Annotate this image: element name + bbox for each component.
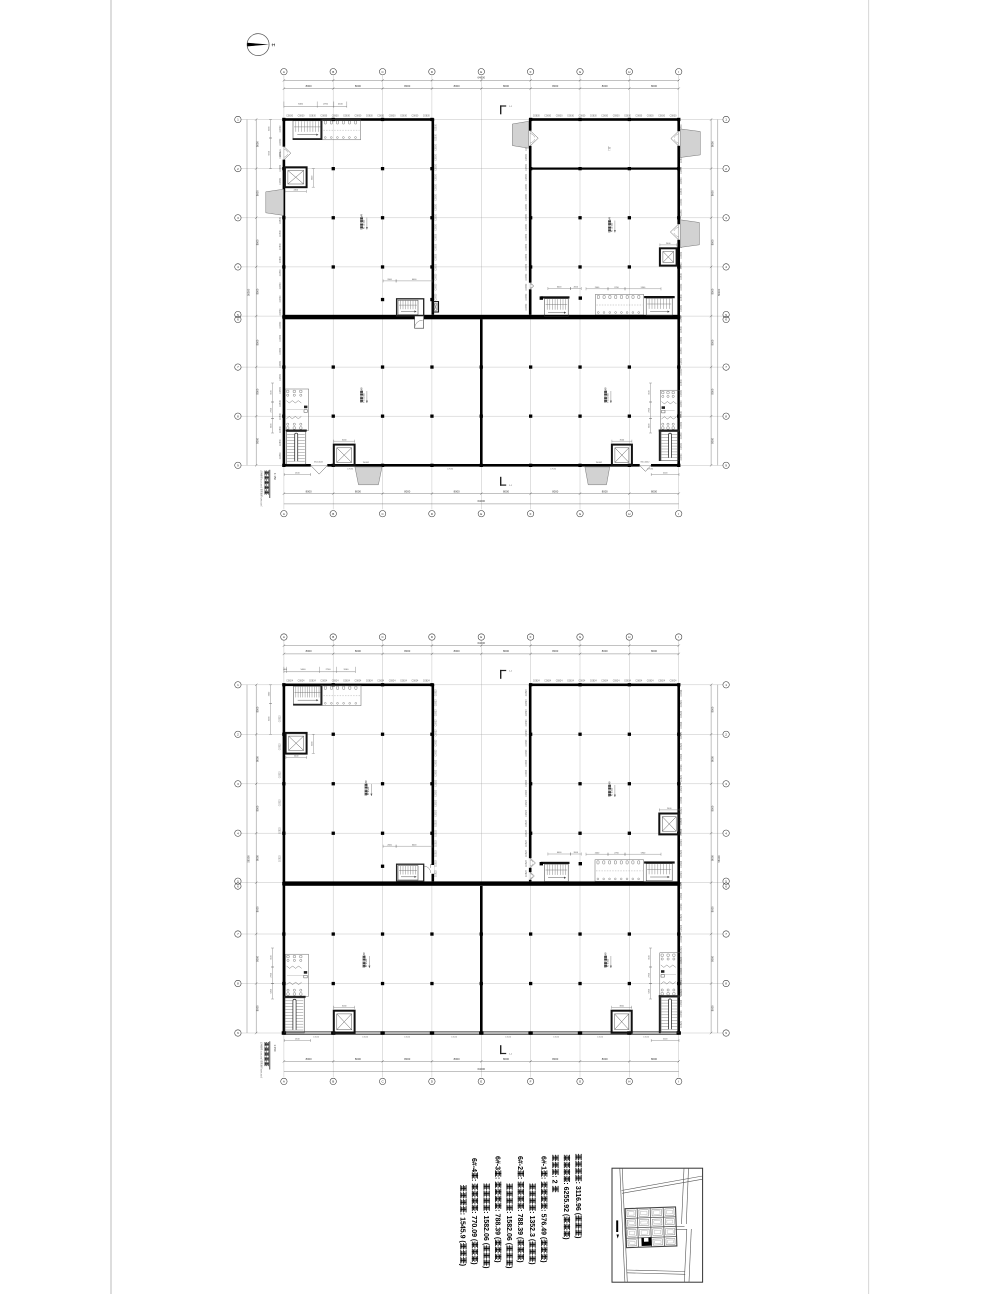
svg-text:C0823: C0823	[280, 715, 282, 722]
svg-text:C0830: C0830	[635, 115, 642, 117]
svg-text:C0824: C0824	[681, 892, 683, 899]
svg-text:C0830: C0830	[435, 173, 437, 180]
svg-text:C0824: C0824	[320, 681, 327, 683]
svg-text:8000: 8000	[256, 239, 260, 245]
svg-text:C0830: C0830	[533, 115, 540, 117]
svg-text:F2 6.000: F2 6.000	[608, 958, 610, 967]
svg-text:C0830: C0830	[670, 115, 677, 117]
svg-text:: 576.49 (: : 576.49 (	[540, 1209, 547, 1240]
svg-text:8000: 8000	[552, 489, 558, 493]
svg-text:C0830: C0830	[280, 308, 282, 315]
svg-text:C0830: C0830	[526, 283, 528, 290]
svg-text:C0830: C0830	[280, 360, 282, 367]
svg-text:C0823: C0823	[526, 689, 528, 696]
svg-text:): )	[574, 1236, 581, 1238]
svg-text:C0823: C0823	[526, 839, 528, 846]
svg-text:C0830: C0830	[681, 272, 683, 279]
svg-text:1:150: 1:150	[273, 473, 277, 480]
svg-text::: :	[493, 1177, 500, 1179]
svg-text:C0824: C0824	[681, 924, 683, 931]
svg-text:C0824: C0824	[681, 839, 683, 846]
svg-text:C0830: C0830	[435, 243, 437, 250]
svg-text:8000: 8000	[454, 649, 460, 653]
svg-text:C0830: C0830	[601, 115, 608, 117]
svg-text:C0824: C0824	[681, 796, 683, 803]
svg-text:C0830: C0830	[681, 187, 683, 194]
svg-text:C0824: C0824	[681, 849, 683, 856]
svg-text:): )	[516, 1260, 523, 1262]
svg-text:C0830: C0830	[526, 293, 528, 300]
svg-text:C0824: C0824	[556, 681, 563, 683]
svg-text:C0823: C0823	[435, 799, 437, 806]
svg-text:C0830: C0830	[280, 256, 282, 263]
svg-text:C0824: C0824	[544, 681, 551, 683]
svg-text:1:150: 1:150	[273, 1045, 277, 1052]
svg-text:A: A	[283, 512, 285, 516]
svg-text:6#-2: 6#-2	[516, 1156, 523, 1170]
svg-text:C0823: C0823	[435, 709, 437, 716]
svg-text:C0830: C0830	[526, 303, 528, 310]
svg-text:C0823: C0823	[526, 779, 528, 786]
svg-text::: :	[470, 1179, 477, 1181]
svg-text:C0824: C0824	[681, 742, 683, 749]
svg-text:C0823: C0823	[435, 699, 437, 706]
svg-text:C0824: C0824	[423, 681, 430, 683]
svg-text:8000: 8000	[503, 649, 509, 653]
svg-text:C0824: C0824	[343, 681, 350, 683]
svg-text:8000: 8000	[552, 649, 558, 653]
svg-text:C0824: C0824	[366, 681, 373, 683]
svg-text:8000: 8000	[503, 1057, 509, 1061]
svg-text:C0823: C0823	[435, 829, 437, 836]
svg-text:6#: 6#	[604, 953, 608, 956]
svg-text:C0824: C0824	[681, 881, 683, 888]
svg-text:: 788.39 (: : 788.39 (	[516, 1209, 523, 1240]
svg-text:8000: 8000	[711, 805, 715, 811]
svg-text:C7530: C7530	[447, 469, 454, 471]
svg-text:C0830: C0830	[280, 243, 282, 250]
svg-text:8000: 8000	[256, 805, 260, 811]
svg-text:64000: 64000	[478, 641, 486, 645]
svg-text:C0824: C0824	[681, 710, 683, 717]
svg-text:C0824: C0824	[389, 681, 396, 683]
svg-text:C0823: C0823	[526, 729, 528, 736]
svg-text:C0830: C0830	[280, 321, 282, 328]
svg-text:F1 ±0.000: F1 ±0.000	[364, 219, 366, 229]
svg-text:W0642: W0642	[596, 462, 603, 464]
svg-text:C0830: C0830	[681, 304, 683, 311]
svg-text:C0830: C0830	[309, 115, 316, 117]
svg-text:F1 ±0.000: F1 ±0.000	[364, 392, 366, 402]
svg-text:): )	[459, 1264, 466, 1266]
svg-text:C0824: C0824	[647, 681, 654, 683]
svg-text:MLC4042: MLC4042	[641, 462, 651, 464]
svg-text:8000: 8000	[404, 649, 410, 653]
svg-text:F: F	[530, 1080, 532, 1084]
svg-text:C0830: C0830	[435, 133, 437, 140]
svg-text:C0824: C0824	[613, 681, 620, 683]
svg-text:8000: 8000	[711, 756, 715, 762]
svg-text:C0824: C0824	[355, 681, 362, 683]
svg-text:C0823: C0823	[526, 870, 528, 877]
svg-text:C7530: C7530	[550, 469, 557, 471]
svg-text:C0830: C0830	[435, 233, 437, 240]
svg-text:C0823: C0823	[526, 789, 528, 796]
svg-text:56300: 56300	[717, 288, 721, 296]
svg-text:8000: 8000	[552, 84, 558, 88]
svg-text:8000: 8000	[711, 141, 715, 147]
svg-text:C0824: C0824	[681, 721, 683, 728]
svg-text:): )	[482, 1266, 489, 1268]
svg-text:C0824: C0824	[681, 946, 683, 953]
svg-text:C0824: C0824	[533, 681, 540, 683]
svg-text:C0824: C0824	[567, 681, 574, 683]
svg-text:C0830: C0830	[280, 216, 282, 223]
svg-text:C0830: C0830	[567, 115, 574, 117]
svg-text:8000: 8000	[306, 489, 312, 493]
svg-text:C0830: C0830	[579, 115, 586, 117]
svg-text:): )	[493, 1260, 500, 1262]
svg-text:C1524: C1524	[362, 1036, 369, 1038]
svg-text:C0830: C0830	[681, 336, 683, 343]
svg-text:E: E	[480, 512, 482, 516]
svg-text:8000: 8000	[711, 955, 715, 961]
svg-text:C0830: C0830	[681, 442, 683, 449]
svg-text:C0830: C0830	[658, 115, 665, 117]
svg-text:C0830: C0830	[280, 125, 282, 132]
svg-text:C0830: C0830	[681, 410, 683, 417]
svg-text:C0830: C0830	[681, 453, 683, 460]
svg-text:C0830: C0830	[280, 229, 282, 236]
svg-text:C0830: C0830	[681, 294, 683, 301]
svg-text:8000: 8000	[711, 1005, 715, 1011]
svg-text:C0823: C0823	[526, 749, 528, 756]
svg-text:H: H	[628, 512, 630, 516]
svg-text:C0830: C0830	[400, 115, 407, 117]
svg-text:C0830: C0830	[681, 283, 683, 290]
svg-text:8000: 8000	[404, 489, 410, 493]
svg-text:C0823: C0823	[435, 769, 437, 776]
svg-text:8000: 8000	[711, 288, 715, 294]
svg-text:C0830: C0830	[526, 203, 528, 210]
svg-text:C0830: C0830	[681, 368, 683, 375]
svg-text:C0830: C0830	[366, 115, 373, 117]
svg-text:C0830: C0830	[355, 115, 362, 117]
svg-text:C0830: C0830	[681, 166, 683, 173]
svg-text:C0823: C0823	[280, 799, 282, 806]
svg-text:8000: 8000	[355, 1057, 361, 1061]
svg-text:C0830: C0830	[526, 243, 528, 250]
svg-text:C0830: C0830	[526, 223, 528, 230]
svg-text:8000: 8000	[454, 84, 460, 88]
svg-text:8000: 8000	[711, 706, 715, 712]
svg-text:64000: 64000	[478, 76, 486, 80]
svg-text:56300: 56300	[246, 288, 250, 296]
svg-text:8000: 8000	[404, 1057, 410, 1061]
svg-text:C0824: C0824	[658, 681, 665, 683]
svg-text:C0824: C0824	[681, 999, 683, 1006]
svg-text:C0830: C0830	[526, 273, 528, 280]
svg-text:8000: 8000	[503, 84, 509, 88]
svg-text:8000: 8000	[602, 1057, 608, 1061]
svg-text:C0830: C0830	[681, 389, 683, 396]
svg-text:: 3116.96 (: : 3116.96 (	[574, 1182, 581, 1216]
svg-text:8000: 8000	[503, 489, 509, 493]
svg-text:C1524: C1524	[553, 1036, 560, 1038]
svg-text:C0830: C0830	[280, 439, 282, 446]
svg-text:C0824: C0824	[400, 681, 407, 683]
svg-text:C0824: C0824	[681, 967, 683, 974]
svg-text:MLC4042: MLC4042	[314, 462, 324, 464]
svg-text:C0824: C0824	[681, 817, 683, 824]
svg-text:H: H	[628, 1080, 630, 1084]
svg-text:6#: 6#	[360, 388, 364, 391]
svg-text:6#: 6#	[608, 782, 612, 785]
svg-text:C0830: C0830	[435, 183, 437, 190]
svg-text:C1524: C1524	[597, 1036, 604, 1038]
svg-text:C0823: C0823	[526, 819, 528, 826]
svg-text:F1 ±0.000: F1 ±0.000	[612, 222, 614, 232]
svg-text:MC0842: MC0842	[280, 148, 282, 156]
svg-text:C0823: C0823	[435, 749, 437, 756]
svg-text:C0823: C0823	[280, 743, 282, 750]
svg-text:8000: 8000	[355, 84, 361, 88]
svg-text:8000: 8000	[454, 1057, 460, 1061]
svg-text:C0830: C0830	[435, 283, 437, 290]
svg-text:8000: 8000	[454, 489, 460, 493]
svg-text:64000: 64000	[478, 1067, 486, 1071]
svg-text:8000: 8000	[651, 84, 657, 88]
svg-text:8000: 8000	[651, 489, 657, 493]
svg-text:C0830: C0830	[280, 412, 282, 419]
svg-text:): )	[470, 1262, 477, 1264]
svg-text:C0823: C0823	[526, 809, 528, 816]
svg-text:C0823: C0823	[435, 739, 437, 746]
svg-text:B: B	[332, 635, 334, 639]
svg-text:8000: 8000	[711, 388, 715, 394]
svg-text:C0824: C0824	[681, 903, 683, 910]
svg-text::: :	[516, 1177, 523, 1179]
svg-text:): )	[505, 1266, 512, 1268]
svg-text:C0830: C0830	[280, 282, 282, 289]
svg-text:B: B	[332, 512, 334, 516]
svg-text:C0824: C0824	[681, 978, 683, 985]
svg-text:C0830: C0830	[280, 177, 282, 184]
svg-text:8000: 8000	[256, 437, 260, 443]
svg-text:C0830: C0830	[526, 253, 528, 260]
svg-text:A: A	[283, 70, 285, 74]
svg-text:8000: 8000	[711, 239, 715, 245]
svg-text:C0824: C0824	[670, 681, 677, 683]
svg-text:C7530: C7530	[647, 469, 654, 471]
svg-text:C0830: C0830	[590, 115, 597, 117]
svg-text:8000: 8000	[256, 756, 260, 762]
svg-text:E: E	[480, 635, 482, 639]
svg-text:: 1545.9 (: : 1545.9 (	[459, 1213, 466, 1244]
svg-text:C0824: C0824	[332, 681, 339, 683]
svg-text:8000: 8000	[602, 649, 608, 653]
svg-text:C0823: C0823	[435, 759, 437, 766]
svg-text:2700: 2700	[323, 104, 329, 106]
svg-text:C0823: C0823	[526, 709, 528, 716]
svg-text:C0824: C0824	[579, 681, 586, 683]
svg-text:C0830: C0830	[526, 173, 528, 180]
svg-text:6#-3: 6#-3	[493, 1156, 500, 1170]
svg-text:8000: 8000	[306, 84, 312, 88]
svg-text:C0830: C0830	[681, 198, 683, 205]
svg-text:6#-4: 6#-4	[470, 1158, 477, 1172]
svg-text:8000: 8000	[651, 649, 657, 653]
svg-text:C0824: C0824	[286, 681, 293, 683]
svg-text:C0824: C0824	[412, 681, 419, 683]
svg-text:8000: 8000	[306, 649, 312, 653]
svg-text:8000: 8000	[602, 84, 608, 88]
svg-text:C0824: C0824	[681, 764, 683, 771]
svg-text:C0830: C0830	[647, 115, 654, 117]
svg-text:56300: 56300	[717, 855, 721, 863]
svg-text:F2 6.000: F2 6.000	[368, 786, 370, 795]
svg-text:C0824: C0824	[681, 828, 683, 835]
svg-text:C0830: C0830	[681, 347, 683, 354]
svg-text:6#: 6#	[604, 388, 608, 391]
svg-text:C0823: C0823	[435, 819, 437, 826]
svg-text:C0830: C0830	[280, 138, 282, 145]
svg-text:F: F	[530, 635, 532, 639]
svg-text:F2 6.000: F2 6.000	[366, 958, 368, 967]
svg-text:C1524: C1524	[451, 1036, 458, 1038]
svg-text:2700: 2700	[326, 669, 332, 671]
svg-text:): )	[562, 1237, 569, 1239]
svg-text:: 788.39 (: : 788.39 (	[493, 1209, 500, 1240]
svg-text:C0830: C0830	[332, 115, 339, 117]
svg-text:C0824: C0824	[681, 700, 683, 707]
svg-text:C0823: C0823	[435, 779, 437, 786]
svg-text:8000: 8000	[256, 190, 260, 196]
svg-text:6#: 6#	[362, 953, 366, 956]
svg-text:8000: 8000	[256, 955, 260, 961]
svg-text:8000: 8000	[711, 906, 715, 912]
svg-text:C0830: C0830	[280, 386, 282, 393]
svg-text:8000: 8000	[711, 437, 715, 443]
svg-text:C0824: C0824	[681, 914, 683, 921]
svg-text:5400: 5400	[301, 669, 307, 671]
svg-text:C0830: C0830	[435, 213, 437, 220]
svg-text:C0830: C0830	[681, 251, 683, 258]
svg-text:C0824: C0824	[681, 935, 683, 942]
svg-text:C0823: C0823	[435, 729, 437, 736]
svg-text:8000: 8000	[711, 190, 715, 196]
svg-text:C0830: C0830	[681, 325, 683, 332]
svg-text:C0823: C0823	[526, 849, 528, 856]
svg-text:C0824: C0824	[309, 681, 316, 683]
svg-text:C0830: C0830	[320, 115, 327, 117]
svg-text:8000: 8000	[602, 489, 608, 493]
svg-text:C0823: C0823	[280, 771, 282, 778]
svg-text:6#: 6#	[364, 781, 368, 784]
svg-text:C0830: C0830	[526, 183, 528, 190]
svg-text:C0830: C0830	[435, 223, 437, 230]
svg-text:C0823: C0823	[526, 739, 528, 746]
svg-text:C0823: C0823	[435, 789, 437, 796]
svg-text:C0823: C0823	[526, 799, 528, 806]
svg-text:C0830: C0830	[280, 426, 282, 433]
svg-text:: 1352.3 (: : 1352.3 (	[528, 1211, 535, 1242]
svg-text:6#: 6#	[608, 217, 612, 220]
svg-text:8000: 8000	[256, 906, 260, 912]
svg-text:C0824: C0824	[298, 681, 305, 683]
svg-text:C0830: C0830	[286, 115, 293, 117]
svg-text:C0830: C0830	[681, 209, 683, 216]
svg-text:8000: 8000	[404, 84, 410, 88]
svg-text:C0824: C0824	[681, 1021, 683, 1028]
svg-text:8000: 8000	[711, 339, 715, 345]
svg-text:C0830: C0830	[681, 379, 683, 386]
svg-text::: :	[540, 1177, 547, 1179]
svg-text:8000: 8000	[552, 1057, 558, 1061]
svg-text:C0830: C0830	[280, 452, 282, 459]
svg-text:C0830: C0830	[681, 400, 683, 407]
svg-text:: 1582.06 (: : 1582.06 (	[482, 1211, 489, 1246]
svg-text:C0830: C0830	[681, 357, 683, 364]
svg-text:C1524: C1524	[643, 1036, 650, 1038]
svg-text:C0824: C0824	[624, 681, 631, 683]
svg-text:C0830: C0830	[613, 115, 620, 117]
svg-text:8000: 8000	[711, 855, 715, 861]
svg-text:): )	[528, 1262, 535, 1264]
svg-text:C0830: C0830	[280, 399, 282, 406]
svg-text:C0830: C0830	[526, 263, 528, 270]
svg-text:C0830: C0830	[280, 347, 282, 354]
svg-text:56300: 56300	[246, 855, 250, 863]
svg-text:C0830: C0830	[389, 115, 396, 117]
svg-text:C0823: C0823	[435, 859, 437, 866]
svg-text:C0823: C0823	[280, 855, 282, 862]
svg-text:C0824: C0824	[601, 681, 608, 683]
svg-text:C0823: C0823	[435, 689, 437, 696]
svg-text:C7530: C7530	[347, 469, 354, 471]
svg-text:C0824: C0824	[681, 1010, 683, 1017]
svg-text:C0830: C0830	[681, 262, 683, 269]
svg-text:C1524: C1524	[313, 1036, 320, 1038]
svg-text:C0830: C0830	[681, 421, 683, 428]
svg-text:C0830: C0830	[526, 233, 528, 240]
svg-text:C0823: C0823	[435, 839, 437, 846]
svg-text:C0830: C0830	[298, 115, 305, 117]
svg-text:C0830: C0830	[280, 334, 282, 341]
svg-text:C0830: C0830	[556, 115, 563, 117]
svg-text:C0824: C0824	[681, 871, 683, 878]
svg-text:: 770.09 (: : 770.09 (	[470, 1211, 477, 1242]
svg-text:C0830: C0830	[435, 143, 437, 150]
svg-text:C0823: C0823	[526, 859, 528, 866]
svg-text:C0830: C0830	[280, 373, 282, 380]
svg-text:C0830: C0830	[435, 203, 437, 210]
svg-text:8000: 8000	[256, 141, 260, 147]
svg-text:C0824: C0824	[635, 681, 642, 683]
svg-text:F: F	[530, 512, 532, 516]
svg-text:8000: 8000	[256, 339, 260, 345]
svg-text:F1 ±0.000: F1 ±0.000	[608, 392, 610, 402]
svg-text:6#: 6#	[360, 214, 364, 217]
svg-text:C0823: C0823	[526, 699, 528, 706]
svg-text:C0823: C0823	[435, 719, 437, 726]
svg-text:: 6255.92 (: : 6255.92 (	[562, 1182, 569, 1217]
svg-text:W0642: W0642	[363, 462, 370, 464]
svg-text:: 1582.06 (: : 1582.06 (	[505, 1211, 512, 1246]
svg-text:C0824: C0824	[681, 753, 683, 760]
svg-text:C0830: C0830	[435, 163, 437, 170]
svg-text:C0830: C0830	[435, 193, 437, 200]
